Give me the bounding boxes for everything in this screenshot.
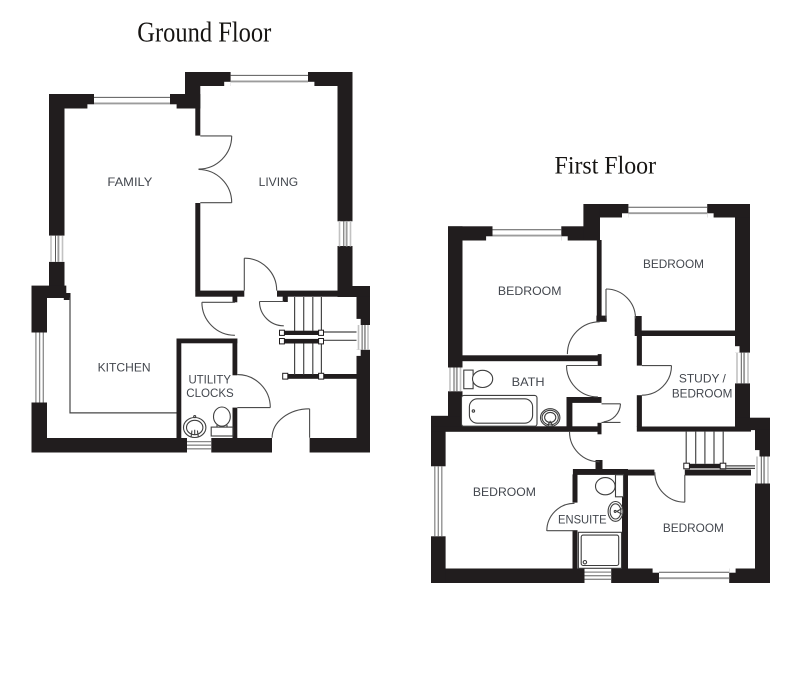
svg-text:KITCHEN: KITCHEN: [98, 360, 151, 374]
svg-text:STUDY /: STUDY /: [679, 371, 727, 385]
svg-text:BEDROOM: BEDROOM: [473, 485, 536, 499]
svg-text:FAMILY: FAMILY: [107, 175, 152, 189]
svg-text:Ground Floor: Ground Floor: [137, 17, 271, 49]
svg-text:LIVING: LIVING: [259, 175, 299, 189]
svg-text:UTILITY: UTILITY: [188, 372, 231, 386]
svg-text:CLOCKS: CLOCKS: [186, 386, 234, 400]
svg-text:First Floor: First Floor: [555, 153, 657, 180]
svg-text:BEDROOM: BEDROOM: [643, 257, 704, 271]
svg-text:ENSUITE: ENSUITE: [558, 512, 607, 526]
svg-text:BEDROOM: BEDROOM: [498, 284, 562, 298]
svg-text:BEDROOM: BEDROOM: [663, 521, 724, 535]
svg-text:BEDROOM: BEDROOM: [672, 386, 733, 400]
svg-text:BATH: BATH: [512, 375, 545, 389]
